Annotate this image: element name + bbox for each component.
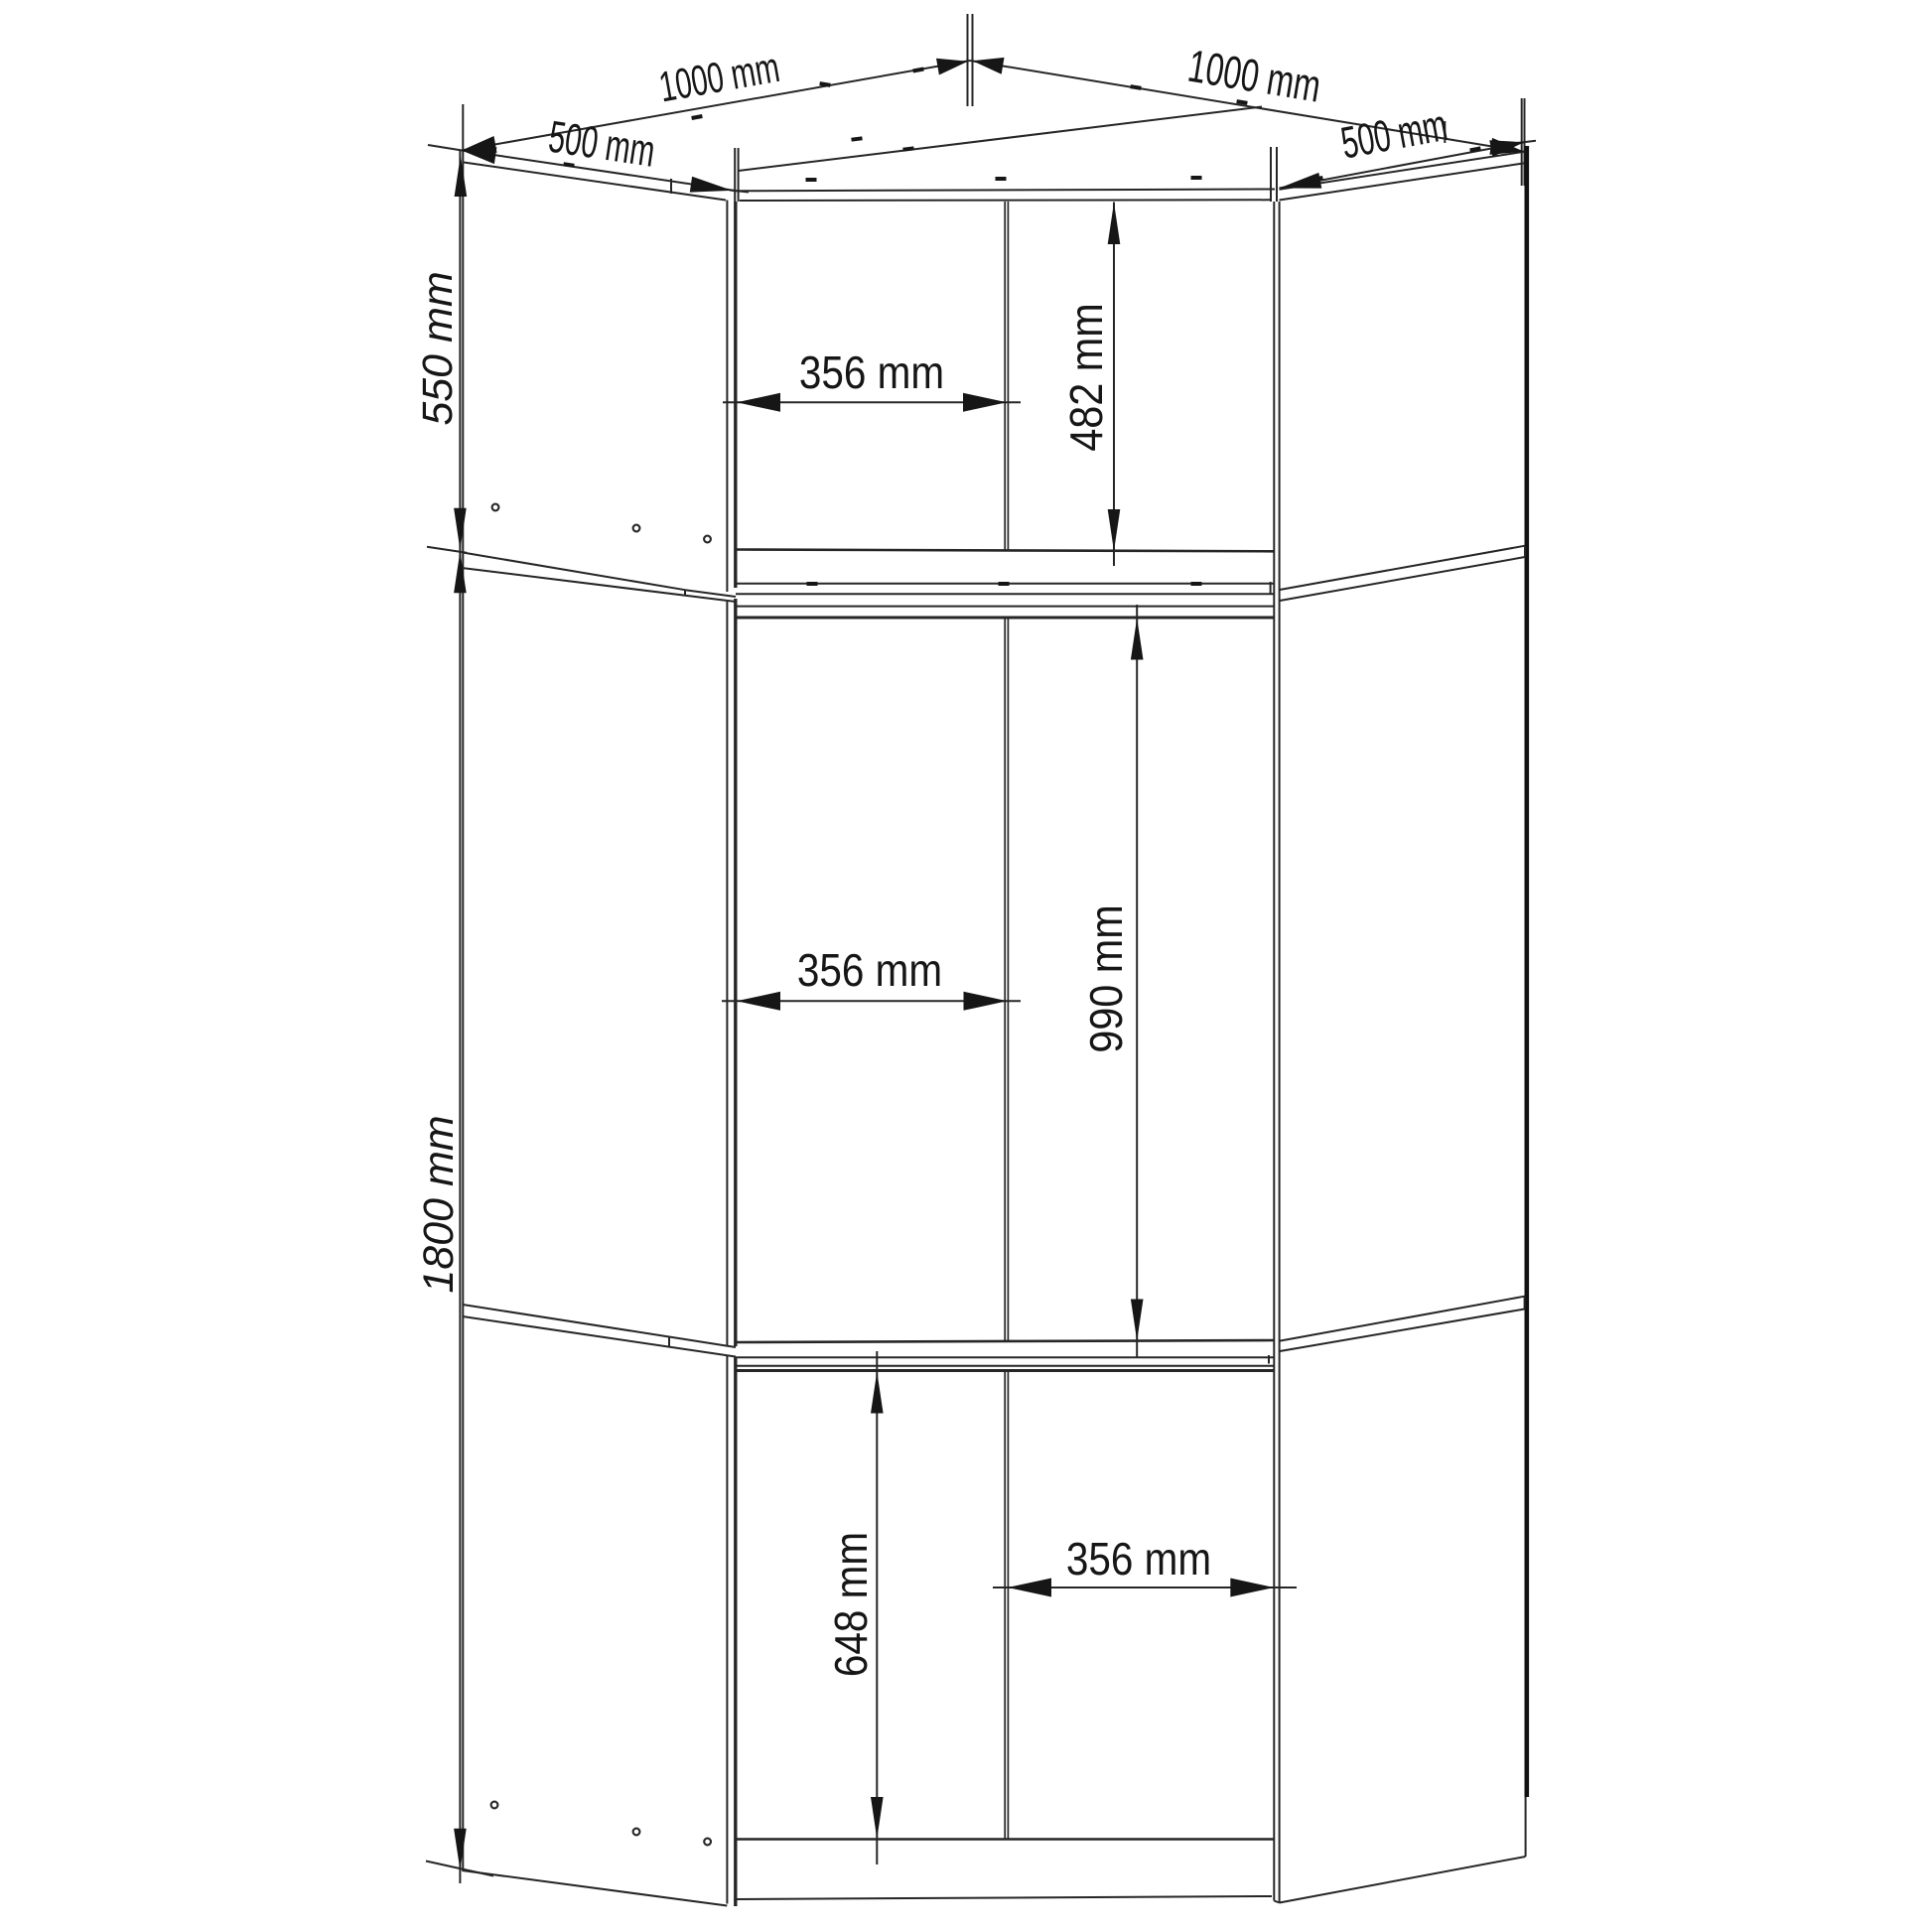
svg-text:356 mm: 356 mm <box>1066 1535 1211 1586</box>
svg-text:356 mm: 356 mm <box>797 946 942 997</box>
svg-text:550 mm: 550 mm <box>414 271 462 425</box>
svg-text:500 mm: 500 mm <box>545 111 658 177</box>
svg-text:1800 mm: 1800 mm <box>415 1115 463 1293</box>
svg-text:356 mm: 356 mm <box>799 348 944 399</box>
svg-text:1000 mm: 1000 mm <box>655 43 782 110</box>
svg-text:990 mm: 990 mm <box>1081 904 1133 1053</box>
svg-text:482 mm: 482 mm <box>1061 303 1113 452</box>
svg-text:648 mm: 648 mm <box>827 1532 878 1677</box>
svg-text:1000 mm: 1000 mm <box>1184 41 1324 112</box>
